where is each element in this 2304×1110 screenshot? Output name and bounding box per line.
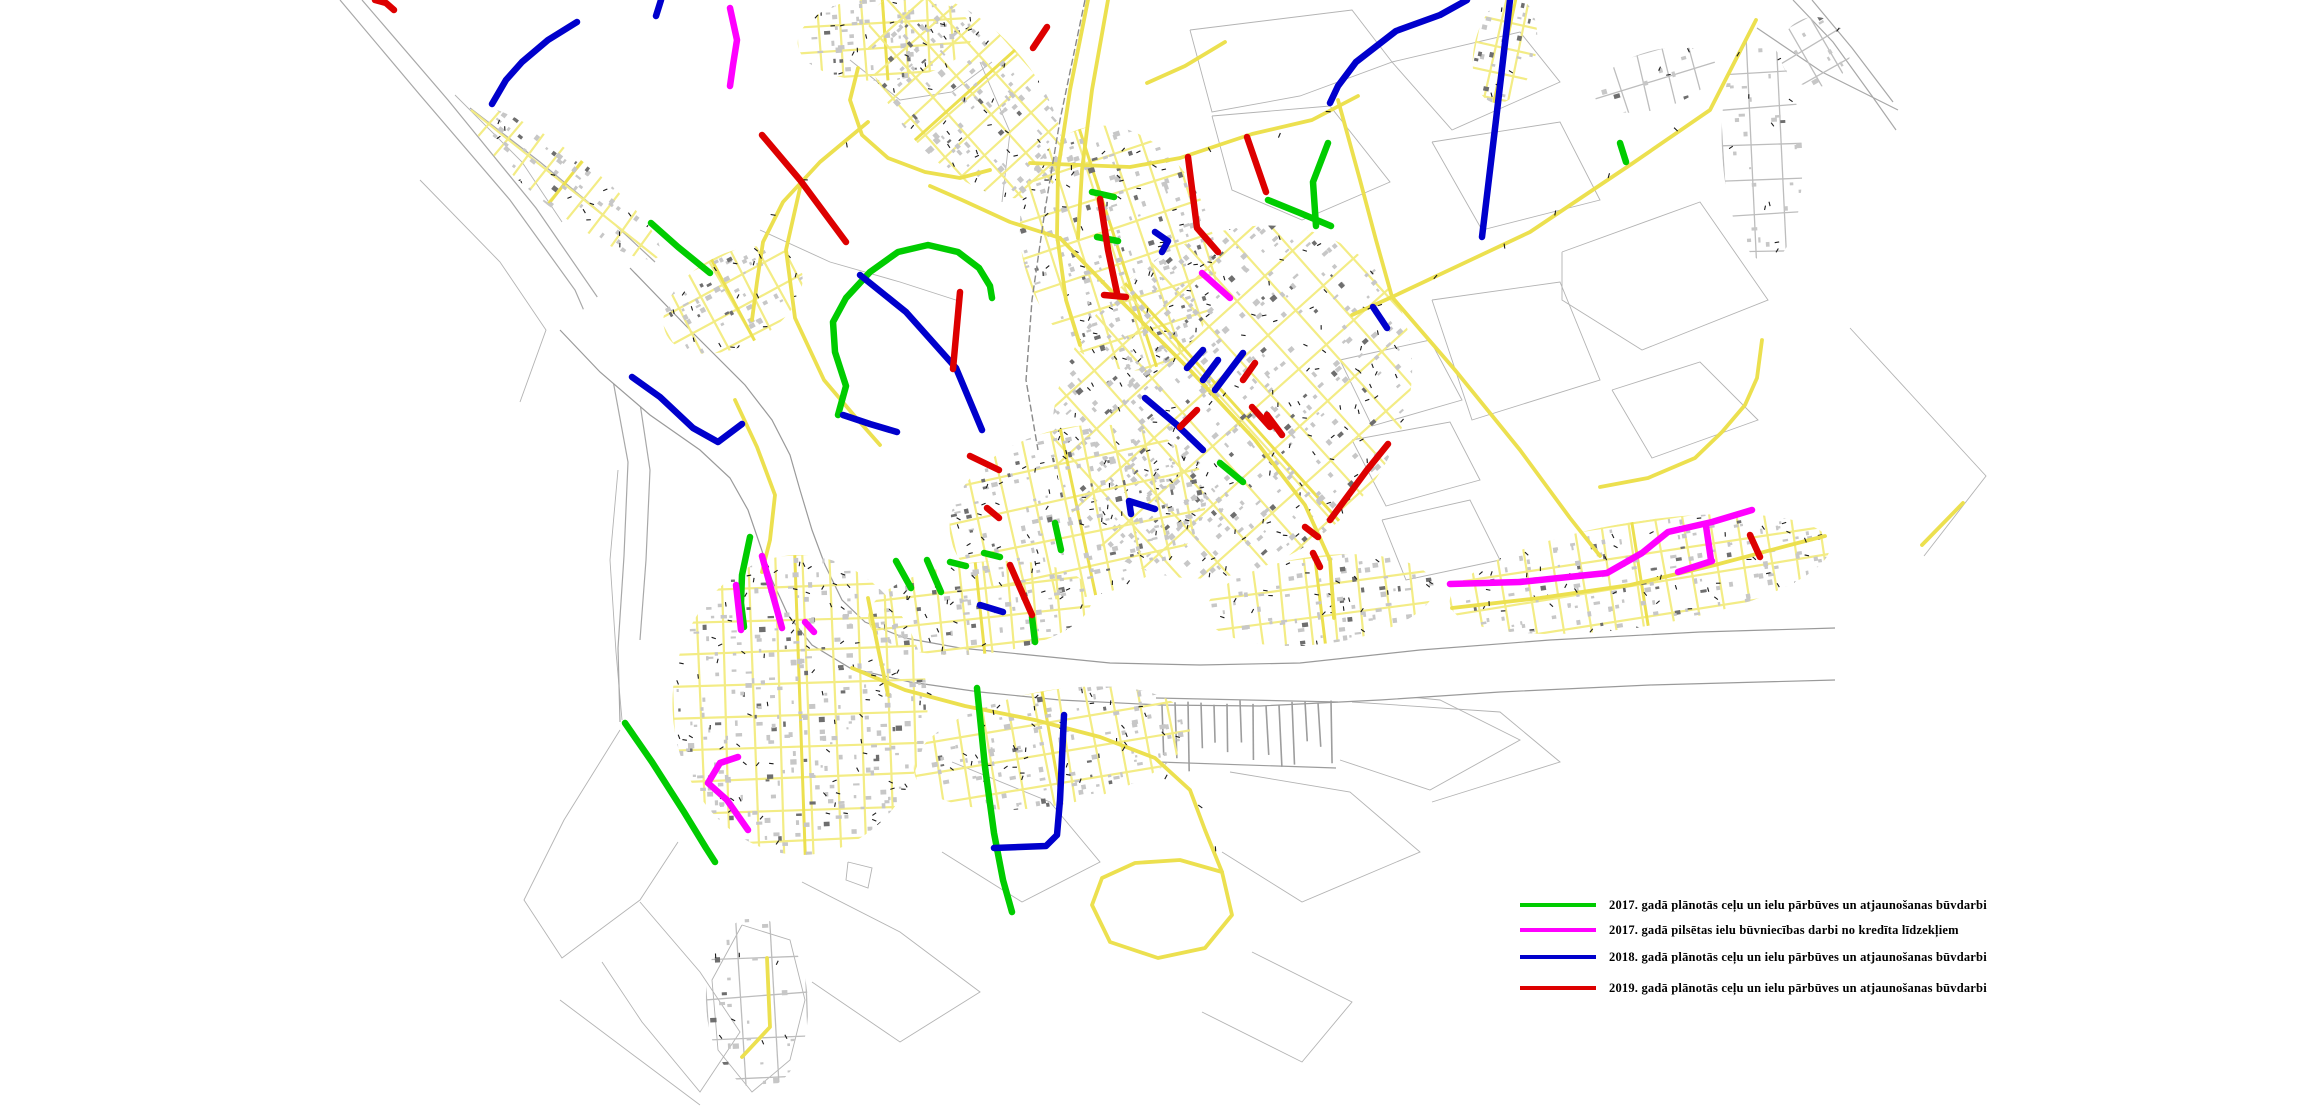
legend-item-planned-2019: 2019. gadā plānotās ceļu un ielu pārbūve… bbox=[1520, 980, 1987, 996]
legend-label: 2018. gadā plānotās ceļu un ielu pārbūve… bbox=[1609, 950, 1987, 965]
legend-label: 2017. gadā pilsētas ielu būvniecības dar… bbox=[1609, 923, 1959, 938]
legend-swatch-red bbox=[1520, 986, 1596, 990]
legend-label: 2019. gadā plānotās ceļu un ielu pārbūve… bbox=[1609, 981, 1987, 996]
city-map bbox=[0, 0, 2304, 1110]
legend-item-planned-2018: 2018. gadā plānotās ceļu un ielu pārbūve… bbox=[1520, 949, 1987, 965]
legend-swatch-blue bbox=[1520, 955, 1596, 959]
legend-item-credit-2017: 2017. gadā pilsētas ielu būvniecības dar… bbox=[1520, 922, 1959, 938]
legend-item-planned-2017: 2017. gadā plānotās ceļu un ielu pārbūve… bbox=[1520, 897, 1987, 913]
map-screenshot: 2017. gadā plānotās ceļu un ielu pārbūve… bbox=[0, 0, 2304, 1110]
legend-swatch-magenta bbox=[1520, 928, 1596, 932]
legend-swatch-green bbox=[1520, 903, 1596, 907]
legend-label: 2017. gadā plānotās ceļu un ielu pārbūve… bbox=[1609, 898, 1987, 913]
